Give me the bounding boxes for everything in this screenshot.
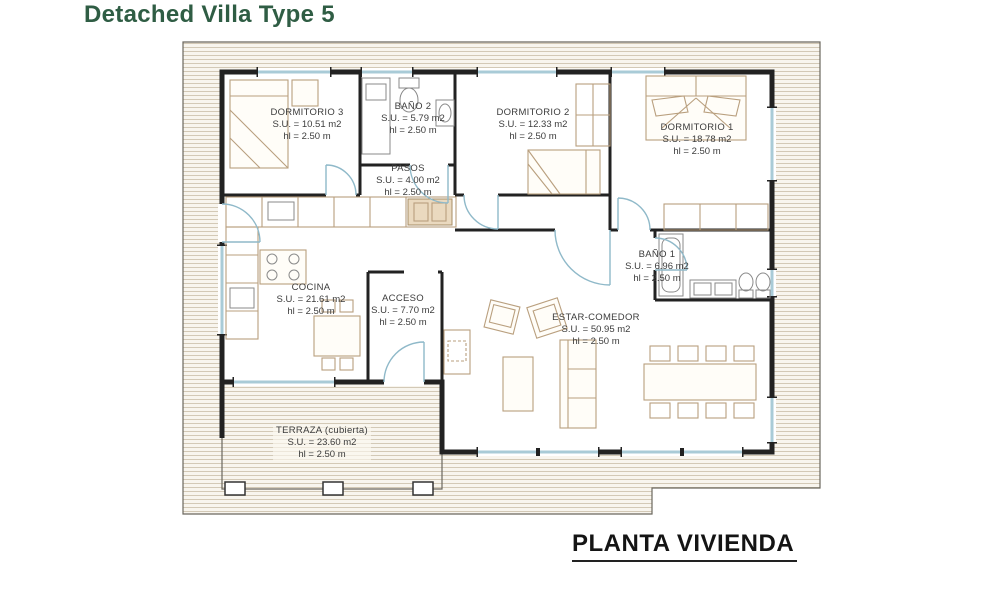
room-label-acceso: ACCESO S.U. = 7.70 m2 hl = 2.50 m bbox=[371, 293, 435, 329]
terrace-column bbox=[323, 482, 343, 495]
room-label-estar-comedor: ESTAR-COMEDOR S.U. = 50.95 m2 hl = 2.50 … bbox=[552, 312, 640, 348]
floor-plan bbox=[0, 0, 1001, 606]
room-label-pasos: PASOS S.U. = 4.00 m2 hl = 2.50 m bbox=[376, 163, 440, 199]
window bbox=[767, 397, 777, 444]
double-sink-icon bbox=[690, 280, 736, 298]
room-label-cocina: COCINA S.U. = 21.61 m2 hl = 2.50 m bbox=[277, 282, 346, 318]
sofa-icon bbox=[560, 340, 596, 428]
bed-icon bbox=[528, 150, 600, 194]
room-label-bano-2: BAÑO 2 S.U. = 5.79 m2 hl = 2.50 m bbox=[381, 101, 445, 137]
terrace-column bbox=[413, 482, 433, 495]
room-label-dormitorio-2: DORMITORIO 2 S.U. = 12.33 m2 hl = 2.50 m bbox=[496, 107, 569, 143]
plan-caption: PLANTA VIVIENDA bbox=[572, 530, 797, 562]
hob-icon bbox=[260, 250, 306, 284]
sliding-window bbox=[477, 447, 600, 457]
window bbox=[257, 67, 332, 77]
window bbox=[361, 67, 414, 77]
nightstand-icon bbox=[292, 80, 318, 106]
coffee-table-icon bbox=[503, 357, 533, 411]
bidet-icon bbox=[756, 273, 770, 298]
room-label-terraza: TERRAZA (cubierta) S.U. = 23.60 m2 hl = … bbox=[273, 425, 371, 461]
sliding-window bbox=[621, 447, 744, 457]
toilet-icon bbox=[739, 273, 753, 298]
window bbox=[767, 269, 777, 298]
room-label-bano-1: BAÑO 1 S.U. = 6.96 m2 hl = 2.50 m bbox=[625, 249, 689, 285]
window bbox=[767, 107, 777, 182]
room-label-dormitorio-3: DORMITORIO 3 S.U. = 10.51 m2 hl = 2.50 m bbox=[270, 107, 343, 143]
screenshot-root: Detached Villa Type 5 bbox=[0, 0, 1001, 606]
wardrobe-icon bbox=[576, 84, 610, 146]
window bbox=[233, 377, 336, 387]
dining-table-icon bbox=[644, 346, 756, 418]
room-label-dormitorio-1: DORMITORIO 1 S.U. = 18.78 m2 hl = 2.50 m bbox=[660, 122, 733, 158]
wardrobe-icon bbox=[664, 204, 768, 230]
tv-unit-icon bbox=[444, 330, 470, 374]
terrace-column bbox=[225, 482, 245, 495]
armchair-icon bbox=[484, 300, 520, 334]
window bbox=[477, 67, 558, 77]
